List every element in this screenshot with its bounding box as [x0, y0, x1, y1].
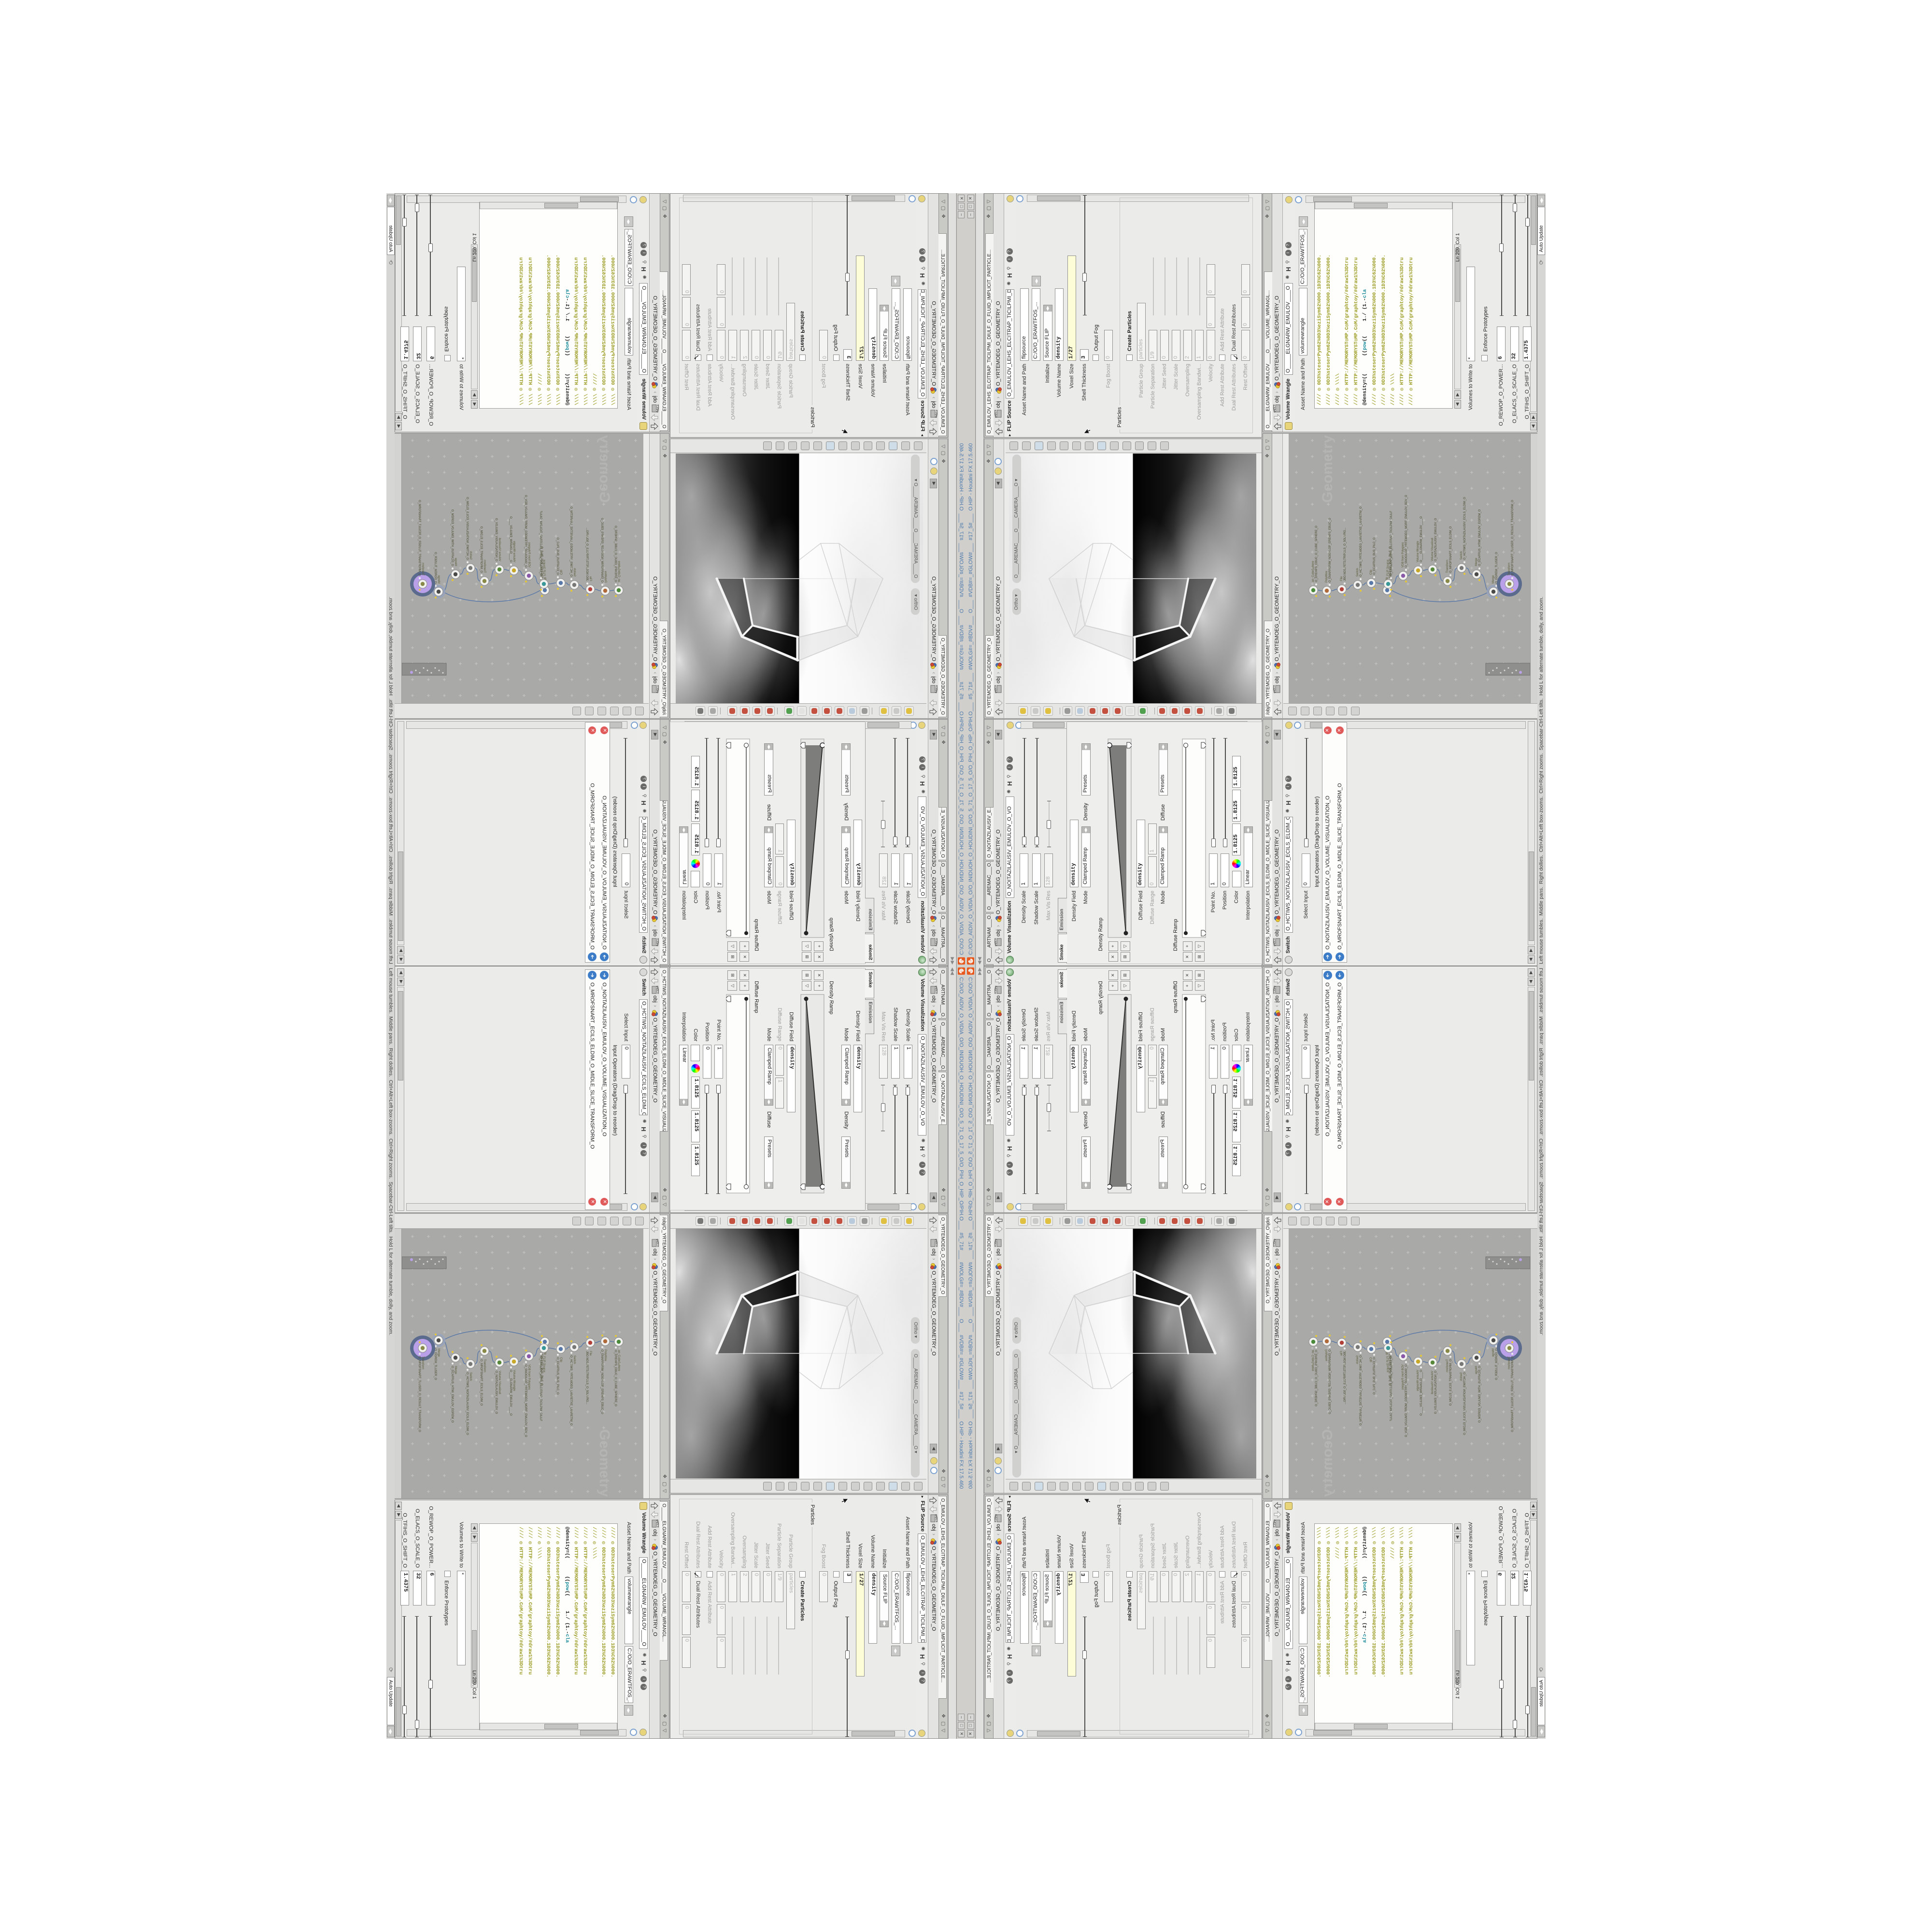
svg-text:O_ECAFRUS_HTIW_EMULOV_EGREM_O: O_ECAFRUS_HTIW_EMULOV_EGREM_O [451, 1366, 454, 1423]
svg-text:O_EGREM_TLUSER_O: O_EGREM_TLUSER_O [1495, 1349, 1498, 1380]
svg-text:Clip: Clip [559, 1357, 562, 1363]
svg-text:Transform: Transform [1508, 563, 1511, 576]
svg-text:VDB from Polygons: VDB from Polygons [1402, 542, 1405, 568]
svg-text:Volume Visualizati: Volume Visualizati [498, 1371, 501, 1394]
svg-text:O____ELGNARW_EMULOV____O: O____ELGNARW_EMULOV____O [1420, 516, 1423, 562]
svg-text:O_HCTIWS_YRTEMOEG_LANRETXE_LAN: O_HCTIWS_YRTEMOEG_LANRETXE_LANRETNI_O [1360, 1355, 1363, 1426]
svg-text:Switch: Switch [1460, 551, 1463, 560]
svg-text:O_ECAFRUS_BUS_PILC_O: O_ECAFRUS_BUS_PILC_O [556, 538, 559, 575]
svg-text:an_CubeSphere: an_CubeSphere [1312, 561, 1315, 582]
svg-text:Clip: Clip [559, 569, 562, 575]
svg-text:Switch: Switch [1356, 568, 1359, 577]
svg-text:an_CubeSphere: an_CubeSphere [617, 1350, 620, 1371]
svg-text:O_MROFSNART_TLUSER_O_RESULT_TR: O_MROFSNART_TLUSER_O_RESULT_TRANSFORM_O [1511, 500, 1514, 576]
svg-text:Transform: Transform [483, 560, 486, 573]
svg-text:PolyWire: PolyWire [604, 570, 607, 582]
svg-text:Transform: Transform [1508, 1356, 1511, 1369]
svg-text:File: File [589, 576, 592, 581]
svg-text:O_EMARFERIW_NOGYLOP_EREHPS_EBU: O_EMARFERIW_NOGYLOP_EREHPS_EBUC_O [1329, 1350, 1332, 1414]
svg-text:Merge: Merge [1492, 575, 1495, 583]
svg-text:O_MROFSNART_TLUSER_O_RESULT_TR: O_MROFSNART_TLUSER_O_RESULT_TRANSFORM_O [418, 500, 421, 576]
svg-text:Geometry: Geometry [597, 1429, 612, 1497]
svg-text:JBO.NO3,PET3,TRIPOLS_O_50LIVRG: JBO.NO3,PET3,TRIPOLS_O_50LIVRG... [585, 527, 588, 581]
svg-text:JBO.NO3,PET3,TRIPOLS_O_50LIVRG: JBO.NO3,PET3,TRIPOLS_O_50LIVRG... [1344, 527, 1347, 581]
svg-text:Volume Wrangle: Volume Wrangle [1417, 540, 1420, 562]
svg-text:FLIP Source: FLIP Source [542, 1356, 545, 1373]
svg-text:Merge: Merge [1492, 1349, 1495, 1357]
svg-text:O_EREHPS_EBUC_O_CUBE_SPHERE_O: O_EREHPS_EBUC_O_CUBE_SPHERE_O [1315, 1350, 1318, 1406]
svg-text:FLIP Source: FLIP Source [1387, 559, 1390, 576]
svg-text:VDB from Polygons: VDB from Polygons [527, 1364, 530, 1390]
svg-text:Volume Wrangle: Volume Wrangle [512, 1370, 515, 1392]
svg-text:O_HCTIWS_NOITAZILAUSIV_ECILS_E: O_HCTIWS_NOITAZILAUSIV_ECILS_ELDIM_O [466, 497, 469, 560]
svg-text:O_ECAFRUS_HTIW_EMULOV_EGREM_O: O_ECAFRUS_HTIW_EMULOV_EGREM_O [1478, 509, 1481, 566]
svg-text:JBO.NO3,PET3,TRIPOLS_O_50LIVRG: JBO.NO3,PET3,TRIPOLS_O_50LIVRG... [585, 1351, 588, 1405]
svg-text:O_EREHPS_EBUC_O_CUBE_SPHERE_O: O_EREHPS_EBUC_O_CUBE_SPHERE_O [1315, 526, 1318, 582]
svg-text:Clip: Clip [1370, 1357, 1373, 1363]
svg-text:File: File [1340, 576, 1343, 581]
svg-text:O_HCTIWS_YRTEMOEG_LANRETXE_LAN: O_HCTIWS_YRTEMOEG_LANRETXE_LANRETNI_O [1360, 506, 1363, 577]
svg-text:File: File [1340, 1351, 1343, 1356]
svg-text:O_MROFSNART_TLUSER_O_RESULT_TR: O_MROFSNART_TLUSER_O_RESULT_TRANSFORM_O [1511, 1356, 1514, 1432]
svg-text:O_SNOGILOP_YRTEMOEG_MORF_EMULO: O_SNOGILOP_YRTEMOEG_MORF_EMULOV_BDV_O [524, 1364, 527, 1437]
svg-text:O_NOITAZILAUSIV_EMULOV_O: O_NOITAZILAUSIV_EMULOV_O [1435, 518, 1437, 561]
svg-text:Switch: Switch [1460, 1372, 1463, 1381]
svg-text:PolyWire: PolyWire [604, 1350, 607, 1362]
svg-text:an_CubeSphere: an_CubeSphere [1312, 1350, 1315, 1371]
svg-text:O_SNOGILOP_YRTEMOEG_MORF_EMULO: O_SNOGILOP_YRTEMOEG_MORF_EMULOV_BDV_O [524, 495, 527, 568]
svg-text:Transform: Transform [1446, 1359, 1449, 1372]
svg-text:O_MROFSNART_ECILS_ELDIM_O: O_MROFSNART_ECILS_ELDIM_O [1449, 526, 1452, 573]
svg-text:O_EGREM_TLUSER_O: O_EGREM_TLUSER_O [434, 1349, 437, 1380]
svg-text:O_EMULOV_LEHS_ELCITRAP_TICILPM: O_EMULOV_LEHS_ELCITRAP_TICILPMI_DIULF [539, 511, 542, 576]
svg-text:O_EMULOV_LEHS_ELCITRAP_TICILPM: O_EMULOV_LEHS_ELCITRAP_TICILPMI_DIULF [1390, 1356, 1393, 1421]
svg-text:Geometry: Geometry [1320, 435, 1335, 503]
svg-text:Switch: Switch [573, 568, 576, 577]
svg-text:O_HCTIWS_NOITAZILAUSIV_ECILS_E: O_HCTIWS_NOITAZILAUSIV_ECILS_ELDIM_O [1463, 497, 1466, 560]
svg-text:O_ECAFRUS_HTIW_EMULOV_EGREM_O: O_ECAFRUS_HTIW_EMULOV_EGREM_O [1478, 1366, 1481, 1423]
svg-text:Switch: Switch [469, 551, 472, 560]
svg-text:VDB from Polygons: VDB from Polygons [527, 542, 530, 568]
svg-text:JBO.NO3,PET3,TRIPOLS_O_50LIVRG: JBO.NO3,PET3,TRIPOLS_O_50LIVRG... [1344, 1351, 1347, 1405]
svg-text:O_EMULOV_LEHS_ELCITRAP_TICILPM: O_EMULOV_LEHS_ELCITRAP_TICILPMI_DIULF [539, 1356, 542, 1421]
svg-text:PolyWire: PolyWire [1325, 570, 1328, 582]
svg-text:an_CubeSphere: an_CubeSphere [617, 561, 620, 582]
svg-text:Clip: Clip [1370, 569, 1373, 575]
svg-text:O_EREHPS_EBUC_O_CUBE_SPHERE_O: O_EREHPS_EBUC_O_CUBE_SPHERE_O [614, 526, 617, 582]
svg-text:Volume Visualizati: Volume Visualizati [1431, 1371, 1434, 1394]
svg-text:FLIP Source: FLIP Source [542, 559, 545, 576]
svg-text:Merge: Merge [454, 557, 457, 566]
svg-text:Geometry: Geometry [1320, 1429, 1335, 1497]
svg-text:O_HCTIWS_YRTEMOEG_LANRETXE_LAN: O_HCTIWS_YRTEMOEG_LANRETXE_LANRETNI_O [569, 506, 572, 577]
svg-text:O_MROFSNART_ECILS_ELDIM_O: O_MROFSNART_ECILS_ELDIM_O [480, 526, 483, 573]
svg-text:Volume Wrangle: Volume Wrangle [512, 540, 515, 562]
svg-text:Merge: Merge [1475, 557, 1478, 566]
svg-text:O_MROFSNART_TLUSER_O_RESULT_TR: O_MROFSNART_TLUSER_O_RESULT_TRANSFORM_O [418, 1356, 421, 1432]
svg-text:O_ECAFRUS_BUS_PILC_O: O_ECAFRUS_BUS_PILC_O [1373, 1357, 1376, 1394]
svg-text:O_ECAFRUS_HTIW_EMULOV_EGREM_O: O_ECAFRUS_HTIW_EMULOV_EGREM_O [451, 509, 454, 566]
svg-text:Transform: Transform [483, 1359, 486, 1372]
svg-text:O_ECAFRUS_BUS_PILC_O: O_ECAFRUS_BUS_PILC_O [1373, 538, 1376, 575]
svg-text:PolyWire: PolyWire [1325, 1350, 1328, 1362]
svg-text:Transform: Transform [1446, 560, 1449, 573]
svg-text:O_NOITAZILAUSIV_EMULOV_O: O_NOITAZILAUSIV_EMULOV_O [495, 518, 497, 561]
svg-text:O_MROFSNART_ECILS_ELDIM_O: O_MROFSNART_ECILS_ELDIM_O [1449, 1359, 1452, 1406]
svg-text:Merge: Merge [437, 1349, 440, 1357]
svg-text:O_SNOGILOP_YRTEMOEG_MORF_EMULO: O_SNOGILOP_YRTEMOEG_MORF_EMULOV_BDV_O [1405, 495, 1408, 568]
svg-text:Merge: Merge [1475, 1366, 1478, 1375]
svg-text:O_ECAFRUS_BUS_PILC_O: O_ECAFRUS_BUS_PILC_O [556, 1357, 559, 1394]
svg-text:O_HCTIWS_NOITAZILAUSIV_ECILS_E: O_HCTIWS_NOITAZILAUSIV_ECILS_ELDIM_O [1463, 1372, 1466, 1435]
svg-text:Volume Wrangle: Volume Wrangle [1417, 1370, 1420, 1392]
svg-text:Merge: Merge [437, 575, 440, 583]
svg-text:O_EMARFERIW_NOGYLOP_EREHPS_EBU: O_EMARFERIW_NOGYLOP_EREHPS_EBUC_O [600, 1350, 603, 1414]
svg-text:Volume Visualizati: Volume Visualizati [498, 538, 501, 561]
svg-text:O____ELGNARW_EMULOV____O: O____ELGNARW_EMULOV____O [509, 516, 512, 562]
svg-text:VDB from Polygons: VDB from Polygons [1402, 1364, 1405, 1390]
svg-text:O_HCTIWS_YRTEMOEG_LANRETXE_LAN: O_HCTIWS_YRTEMOEG_LANRETXE_LANRETNI_O [569, 1355, 572, 1426]
svg-text:Merge: Merge [454, 1366, 457, 1375]
svg-text:O_EMULOV_LEHS_ELCITRAP_TICILPM: O_EMULOV_LEHS_ELCITRAP_TICILPMI_DIULF [1390, 511, 1393, 576]
svg-text:O_EGREM_TLUSER_O: O_EGREM_TLUSER_O [434, 552, 437, 583]
svg-text:O_MROFSNART_ECILS_ELDIM_O: O_MROFSNART_ECILS_ELDIM_O [480, 1359, 483, 1406]
svg-text:O_EMARFERIW_NOGYLOP_EREHPS_EBU: O_EMARFERIW_NOGYLOP_EREHPS_EBUC_O [600, 518, 603, 582]
svg-text:Geometry: Geometry [597, 435, 612, 503]
svg-text:O_SNOGILOP_YRTEMOEG_MORF_EMULO: O_SNOGILOP_YRTEMOEG_MORF_EMULOV_BDV_O [1405, 1364, 1408, 1437]
svg-text:O____ELGNARW_EMULOV____O: O____ELGNARW_EMULOV____O [1420, 1370, 1423, 1416]
svg-text:O_HCTIWS_NOITAZILAUSIV_ECILS_E: O_HCTIWS_NOITAZILAUSIV_ECILS_ELDIM_O [466, 1372, 469, 1435]
svg-text:Switch: Switch [1356, 1355, 1359, 1364]
svg-text:O_EREHPS_EBUC_O_CUBE_SPHERE_O: O_EREHPS_EBUC_O_CUBE_SPHERE_O [614, 1350, 617, 1406]
svg-text:O_EGREM_TLUSER_O: O_EGREM_TLUSER_O [1495, 552, 1498, 583]
svg-text:File: File [589, 1351, 592, 1356]
svg-text:O_NOITAZILAUSIV_EMULOV_O: O_NOITAZILAUSIV_EMULOV_O [1435, 1371, 1437, 1414]
svg-text:Transform: Transform [421, 563, 424, 576]
svg-text:Volume Visualizati: Volume Visualizati [1431, 538, 1434, 561]
svg-text:O_NOITAZILAUSIV_EMULOV_O: O_NOITAZILAUSIV_EMULOV_O [495, 1371, 497, 1414]
svg-text:Switch: Switch [573, 1355, 576, 1364]
svg-text:O_EMARFERIW_NOGYLOP_EREHPS_EBU: O_EMARFERIW_NOGYLOP_EREHPS_EBUC_O [1329, 518, 1332, 582]
svg-text:Transform: Transform [421, 1356, 424, 1369]
svg-text:Switch: Switch [469, 1372, 472, 1381]
svg-text:FLIP Source: FLIP Source [1387, 1356, 1390, 1373]
svg-text:O____ELGNARW_EMULOV____O: O____ELGNARW_EMULOV____O [509, 1370, 512, 1416]
